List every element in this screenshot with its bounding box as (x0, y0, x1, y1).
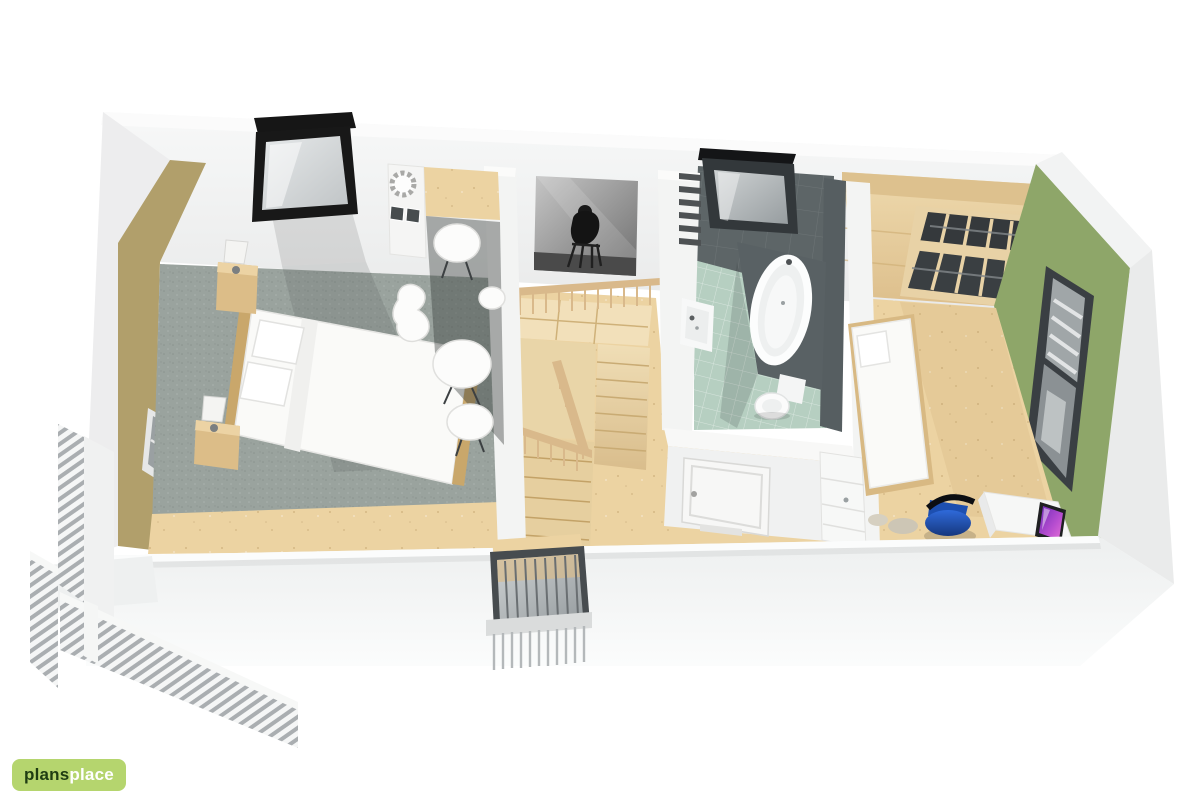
stool-seat (479, 287, 505, 309)
stairwell-artwork (534, 176, 638, 276)
vanity-counter-speckle (424, 167, 500, 220)
toilet-shadow (754, 412, 790, 420)
table-lamp-shade (224, 240, 248, 264)
framed-square-left (390, 206, 404, 221)
floorplan-scene (0, 0, 1200, 800)
mirror-ornament (392, 173, 414, 195)
stool-seat (447, 404, 493, 440)
dormer-window (486, 534, 592, 670)
bathtub-faucet (786, 259, 792, 265)
stool-seat (434, 224, 480, 262)
basin-drain (695, 326, 699, 330)
chair-seat (925, 510, 971, 536)
cabinet-body (820, 452, 866, 548)
designer-chair (393, 284, 429, 341)
hall-cabinet (820, 452, 866, 548)
bed-pillow (857, 331, 890, 367)
roof-window-wall-shadow (272, 212, 366, 266)
table-lamp-base (232, 266, 240, 274)
stair-mid-landing (516, 338, 596, 440)
floor-pouf-small (868, 514, 888, 526)
bed-pillow-top (252, 320, 304, 364)
basin-inner (685, 306, 709, 344)
bathtub-drain (781, 301, 785, 305)
balcony-post (84, 600, 98, 664)
cabinet-knob (844, 498, 849, 503)
stool-seat (433, 340, 491, 388)
logo-text-secondary: place (69, 759, 113, 791)
balcony-railing-corner (30, 556, 58, 688)
table-lamp-shade (202, 396, 226, 422)
door-handle (691, 491, 697, 497)
basin-faucet (690, 316, 695, 321)
wash-basin (680, 298, 714, 352)
bed-pillow-bottom (240, 362, 292, 406)
front-wall (86, 536, 1174, 666)
logo-text-primary: plans (24, 759, 69, 791)
plansplace-logo: plansplace (12, 759, 126, 791)
balcony-railing-side (58, 424, 86, 604)
floorplan-render: plansplace (0, 0, 1200, 800)
floor-pouf-large (888, 518, 918, 534)
bathroom-door (682, 458, 770, 536)
framed-square-right (406, 208, 420, 223)
table-lamp-base (210, 424, 218, 432)
toilet-bowl (762, 399, 782, 413)
